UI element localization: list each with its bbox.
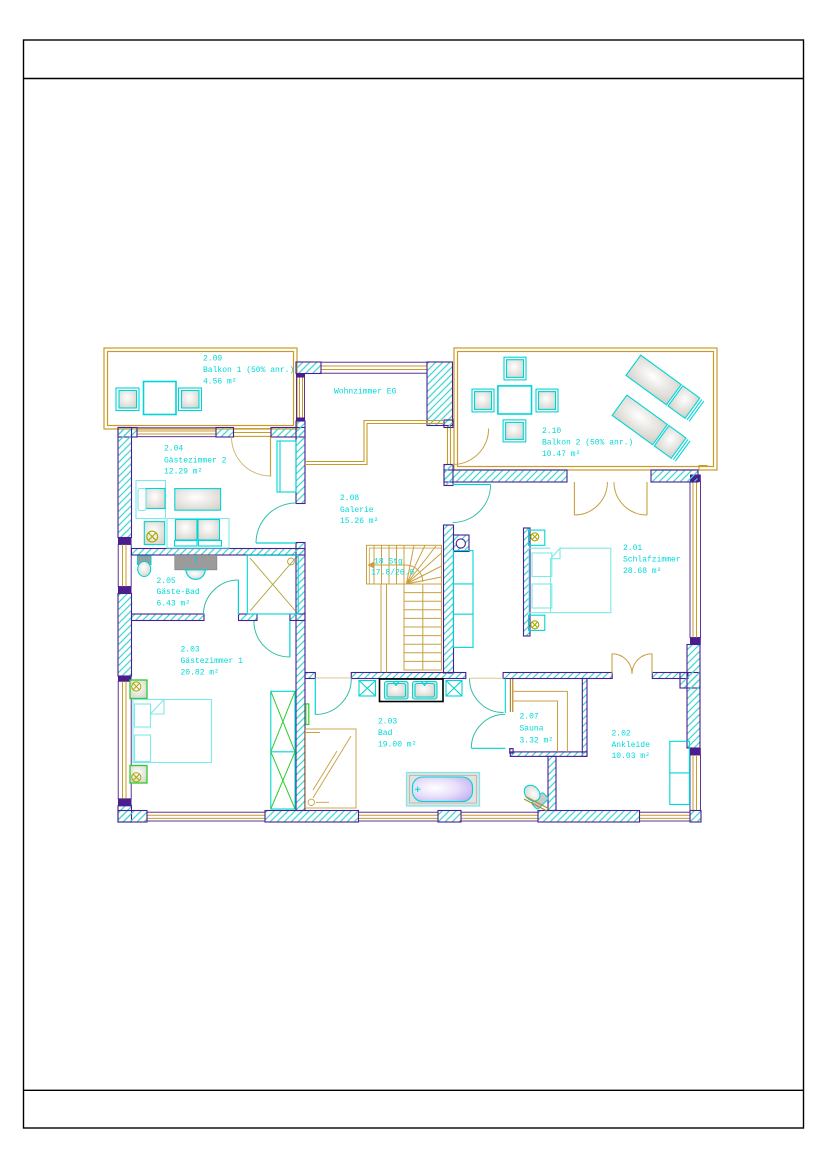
svg-text:2.08: 2.08 [340,494,359,503]
svg-text:6.43 m²: 6.43 m² [157,600,191,609]
svg-text:2.02: 2.02 [612,730,631,739]
svg-text:Galerie: Galerie [340,506,374,515]
svg-text:3.32 m²: 3.32 m² [520,737,554,746]
svg-text:Wohnzimmer EG: Wohnzimmer EG [334,388,397,397]
svg-text:2.07: 2.07 [520,713,539,722]
svg-text:Balkon 1 (50% anr.): Balkon 1 (50% anr.) [203,366,294,375]
svg-text:2.01: 2.01 [623,544,642,553]
svg-text:20.82 m²: 20.82 m² [181,669,219,678]
svg-text:Sauna: Sauna [520,725,544,734]
svg-text:2.09: 2.09 [203,355,222,364]
svg-text:2.03: 2.03 [181,646,200,655]
svg-text:17.8/26.0: 17.8/26.0 [371,569,414,578]
svg-text:10.47 m²: 10.47 m² [542,450,580,459]
svg-text:12.29 m²: 12.29 m² [164,468,202,477]
svg-text:Balkon 2 (50% anr.): Balkon 2 (50% anr.) [542,439,633,448]
svg-text:Schlafzimmer: Schlafzimmer [623,556,681,565]
svg-text:2.05: 2.05 [157,577,176,586]
svg-text:Bad: Bad [378,729,393,738]
svg-text:19.00 m²: 19.00 m² [378,741,416,750]
svg-text:Gästezimmer 2: Gästezimmer 2 [164,457,227,466]
svg-text:2.03: 2.03 [378,718,397,727]
svg-text:15.26 m²: 15.26 m² [340,517,378,526]
svg-text:Ankleide: Ankleide [612,741,651,750]
svg-text:18 Stg: 18 Stg [374,558,403,567]
svg-text:Gästezimmer 1: Gästezimmer 1 [181,657,244,666]
svg-text:2.10: 2.10 [542,427,561,436]
svg-text:28.68 m²: 28.68 m² [623,567,661,576]
svg-text:10.03 m²: 10.03 m² [612,752,650,761]
svg-text:2.04: 2.04 [164,445,183,454]
svg-text:4.56 m²: 4.56 m² [203,378,237,387]
svg-text:Gäste-Bad: Gäste-Bad [157,588,200,597]
